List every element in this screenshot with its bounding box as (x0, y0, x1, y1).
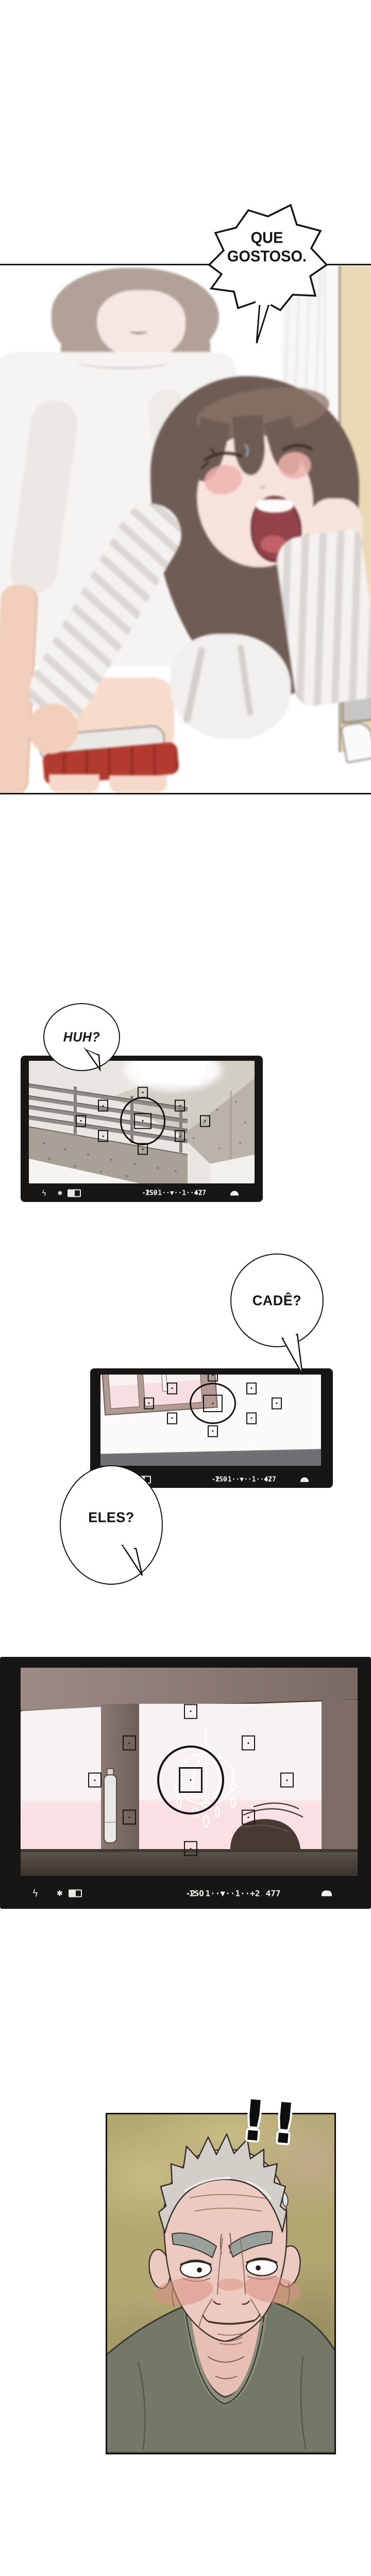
ae-lock-icon: ✱ (57, 1889, 63, 1898)
panel1-bottom-border (0, 793, 371, 794)
iso-label: ISO (189, 1889, 204, 1899)
af-point-icon (184, 1704, 197, 1719)
face-details (196, 435, 314, 497)
ready-indicator-icon (300, 1478, 309, 1482)
af-point-icon (242, 1810, 255, 1825)
towel (340, 721, 371, 764)
camera-viewfinder-1: ϟ ✱ -2··1··▼··1··+2ISO 477 (21, 1056, 263, 1202)
bubble-line: GOSTOSO. (204, 247, 330, 266)
speech-bubble-huh: HUH? (43, 1003, 120, 1071)
viewfinder-image-room (21, 1668, 358, 1876)
battery-icon (69, 1890, 82, 1897)
old-man-portrait (107, 2114, 334, 2453)
bubble-text: QUE GOSTOSO. (204, 229, 330, 265)
burst-bubble-shape (204, 203, 332, 350)
af-point-grid (149, 1376, 277, 1431)
speech-bubble-eles: ELES? (60, 1465, 163, 1585)
leg-right (109, 775, 167, 793)
bubble-tail (120, 1541, 146, 1578)
af-point-icon (280, 1773, 294, 1788)
af-point-icon (167, 1382, 177, 1394)
af-point-icon (242, 1736, 255, 1751)
exclamation-marks: !! (239, 2088, 305, 2158)
af-point-icon (76, 1115, 86, 1127)
panel-old-man-reaction (106, 2113, 336, 2454)
bubble-tail (278, 1333, 305, 1377)
bubble-text: ELES? (88, 1509, 134, 1526)
bubble-line: QUE (204, 229, 330, 247)
iso-label: ISO (215, 1476, 227, 1484)
shots-counter: 477 (194, 1190, 206, 1197)
leg-left (49, 774, 99, 793)
af-point-icon (208, 1425, 218, 1437)
ready-indicator-icon (322, 1891, 332, 1896)
focus-circle-icon (120, 1097, 165, 1145)
focus-circle-icon (157, 1745, 224, 1815)
bubble-text: HUH? (63, 1029, 100, 1045)
flash-icon: ϟ (32, 1888, 39, 1899)
bubble-text: CADÊ? (252, 1292, 302, 1309)
iso-label: ISO (145, 1190, 157, 1197)
af-point-icon (88, 1773, 102, 1788)
webtoon-page: QUE GOSTOSO. HUH? (0, 0, 371, 2576)
af-point-icon (98, 1130, 108, 1142)
ready-indicator-icon (230, 1191, 239, 1196)
af-point-icon (208, 1375, 218, 1381)
af-point-icon (184, 1841, 197, 1856)
camera-viewfinder-3: ϟ ✱ -2··1··▼··1··+2ISO 477 (0, 1657, 371, 1909)
af-point-icon (272, 1397, 282, 1409)
af-point-icon (123, 1810, 136, 1825)
speech-bubble-cade: CADÊ? (230, 1253, 324, 1347)
af-point-icon (144, 1397, 154, 1409)
shots-counter: 477 (266, 1889, 281, 1899)
speech-bubble-que-gostoso: QUE GOSTOSO. (204, 203, 332, 350)
af-point-grid (81, 1093, 205, 1149)
viewfinder-hud: ϟ ✱ -2··1··▼··1··+2ISO 477 (28, 1187, 256, 1199)
shots-counter: 477 (264, 1476, 276, 1484)
teeth (256, 499, 293, 513)
af-point-icon (123, 1736, 136, 1751)
flash-icon: ϟ (42, 1189, 47, 1198)
af-point-icon (175, 1130, 185, 1142)
focus-circle-icon (190, 1383, 236, 1424)
af-point-icon (246, 1382, 257, 1394)
viewfinder-image-window (100, 1375, 321, 1466)
af-point-icon (98, 1100, 108, 1112)
white-skirt (170, 634, 291, 739)
viewfinder-image-balcony (29, 1061, 255, 1183)
af-point-icon (246, 1412, 257, 1424)
tshirt-collar (77, 354, 170, 369)
battery-icon (68, 1190, 81, 1197)
bubble-tail (82, 1048, 105, 1071)
viewfinder-hud: ϟ ✱ -2··1··▼··1··+2ISO 477 (11, 1883, 360, 1904)
ae-lock-icon: ✱ (58, 1190, 63, 1197)
af-point-icon (167, 1412, 177, 1424)
af-point-icon (200, 1115, 210, 1127)
af-point-icon (175, 1100, 185, 1112)
man-mouth (130, 328, 147, 334)
af-point-grid (95, 1711, 287, 1849)
window-pane-left (107, 1375, 140, 1409)
